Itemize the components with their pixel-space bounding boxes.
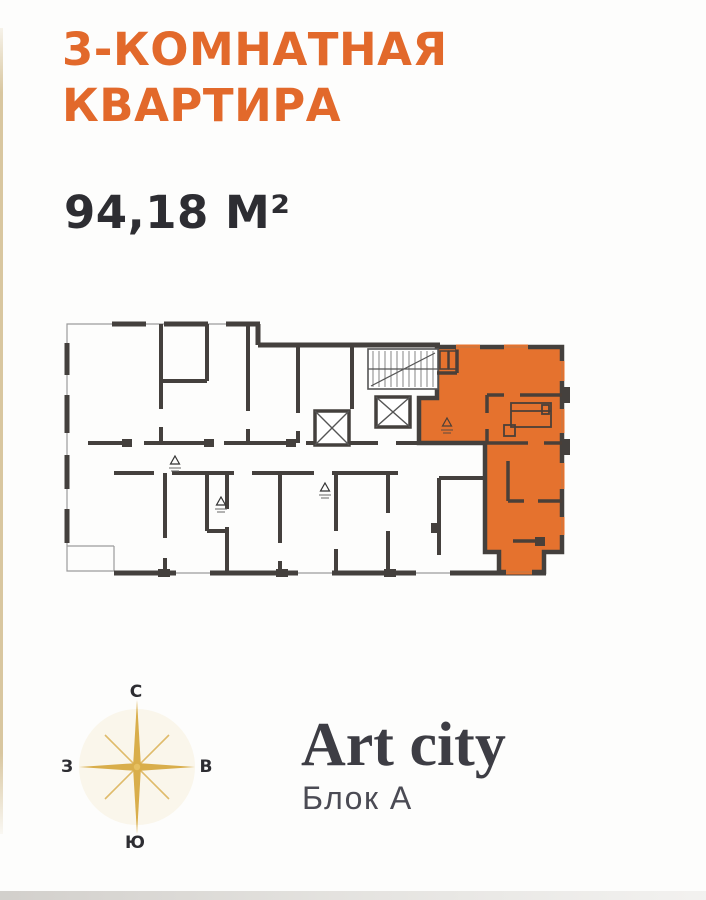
photo-bottom-edge bbox=[0, 891, 706, 900]
area-marker-icons bbox=[169, 418, 453, 512]
compass-star bbox=[79, 700, 195, 834]
compass-label-east: В bbox=[200, 757, 213, 777]
compass-label-south: Ю bbox=[125, 833, 145, 853]
apartment-title-line2: КВАРТИРА bbox=[62, 78, 448, 134]
apartment-area: 94,18 М² bbox=[64, 186, 291, 239]
left-accent-line bbox=[0, 28, 3, 834]
apartment-title-line1: 3-КОМНАТНАЯ bbox=[62, 22, 448, 78]
flyer-page: { "header": { "title_line1": "3-КОМНАТНА… bbox=[0, 0, 706, 900]
brand-block-label: Блок А bbox=[302, 780, 413, 817]
compass-label-west: З bbox=[61, 757, 73, 777]
brand-name: Art city bbox=[301, 710, 506, 781]
elevator-2 bbox=[376, 397, 410, 427]
elevator-1 bbox=[315, 411, 349, 445]
apartment-door-post bbox=[535, 537, 545, 546]
floor-plan bbox=[58, 313, 570, 579]
compass-label-north: С bbox=[130, 682, 142, 702]
apartment-title: 3-КОМНАТНАЯ КВАРТИРА bbox=[62, 22, 448, 134]
stairs bbox=[368, 349, 438, 389]
